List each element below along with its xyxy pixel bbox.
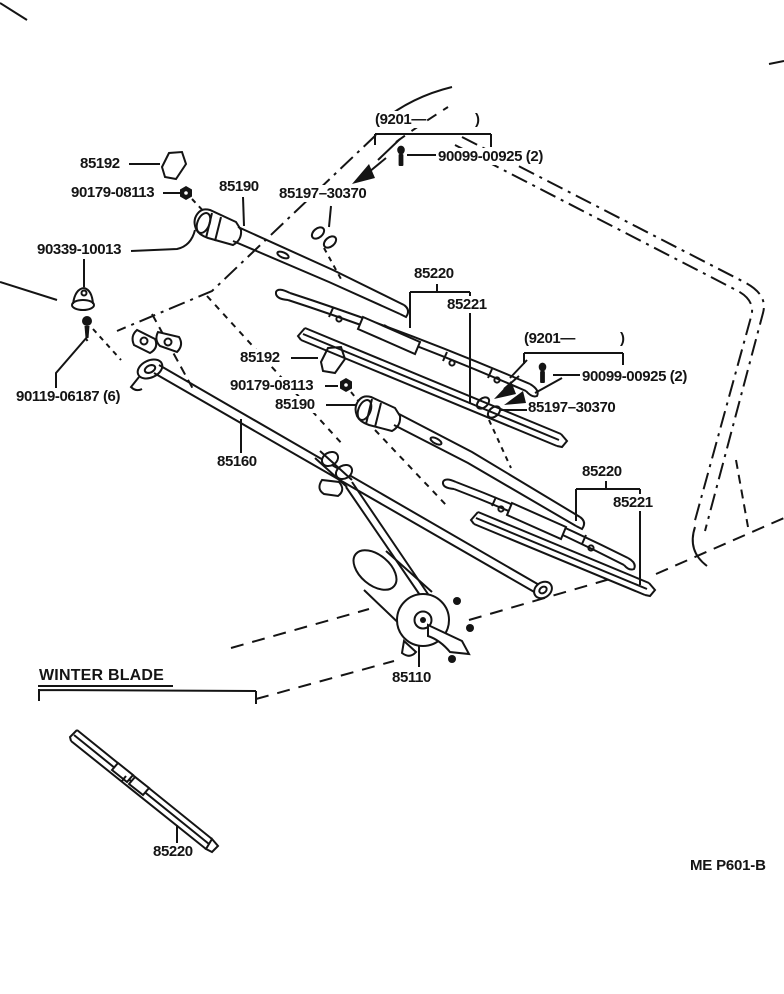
winter-heading-rule bbox=[38, 686, 256, 704]
label-85192-2: 85192 bbox=[239, 349, 281, 366]
wiper-motor bbox=[346, 542, 474, 663]
label-85197-2: 85197–30370 bbox=[527, 399, 616, 416]
label-85160: 85160 bbox=[216, 453, 258, 470]
dashed-leaders bbox=[93, 199, 511, 506]
label-85110: 85110 bbox=[391, 669, 432, 686]
nut-icon-2 bbox=[340, 378, 352, 392]
arrow-icon-1 bbox=[352, 139, 400, 184]
label-90119: 90119-06187 (6) bbox=[15, 388, 121, 405]
bolt-icon bbox=[82, 316, 92, 341]
mirror-patch-curve bbox=[693, 527, 707, 566]
wiper-parts-diagram bbox=[0, 0, 784, 994]
label-90179-2: 90179-08113 bbox=[229, 377, 314, 394]
label-85197-1: 85197–30370 bbox=[278, 185, 367, 202]
cowl-dash-left-2 bbox=[256, 661, 394, 699]
clip-part-1 bbox=[310, 225, 339, 250]
note-9201-2-close: ) bbox=[619, 330, 626, 347]
grommet-icon bbox=[72, 288, 94, 310]
winter-blade bbox=[70, 730, 218, 852]
wiper-blade-1 bbox=[276, 290, 538, 397]
wiper-arm-1 bbox=[194, 209, 408, 317]
note-bracket-2 bbox=[524, 353, 623, 365]
note-9201-1-open: (9201— bbox=[374, 111, 427, 128]
label-85221-2: 85221 bbox=[612, 494, 654, 511]
heading-winter-blade: WINTER BLADE bbox=[38, 667, 165, 684]
label-85221-1: 85221 bbox=[446, 296, 488, 313]
nut-icon-1 bbox=[180, 186, 192, 200]
screw-icon-2 bbox=[539, 363, 547, 383]
label-85192-1: 85192 bbox=[79, 155, 121, 172]
pillar-detail-line bbox=[736, 460, 748, 527]
parts-diagram-page: (9201—)90099-00925 (2)8519290179-0811385… bbox=[0, 0, 784, 994]
label-90339: 90339-10013 bbox=[36, 241, 122, 258]
label-85220-3: 85220 bbox=[152, 843, 194, 860]
label-90099-1: 90099-00925 (2) bbox=[437, 148, 544, 165]
windshield-outline bbox=[0, 3, 784, 699]
screw-icon-1 bbox=[397, 146, 405, 166]
label-90179-1: 90179-08113 bbox=[70, 184, 155, 201]
label-85190-1: 85190 bbox=[218, 178, 260, 195]
label-90099-2: 90099-00925 (2) bbox=[581, 368, 688, 385]
body-corner-line bbox=[0, 3, 27, 20]
label-85190-2: 85190 bbox=[274, 396, 316, 413]
belt-line bbox=[656, 518, 784, 574]
cap-part-1 bbox=[162, 152, 186, 179]
note-9201-1-close: ) bbox=[474, 111, 481, 128]
windshield-corner-drop bbox=[152, 314, 193, 389]
hood-line bbox=[0, 282, 57, 300]
label-85220-2: 85220 bbox=[581, 463, 623, 480]
label-fig-code: ME P601-B bbox=[689, 857, 767, 874]
page-tick bbox=[769, 61, 784, 64]
label-85220-1: 85220 bbox=[413, 265, 455, 282]
cowl-dash-left-1 bbox=[231, 609, 369, 648]
note-9201-2-open: (9201— bbox=[523, 330, 576, 347]
